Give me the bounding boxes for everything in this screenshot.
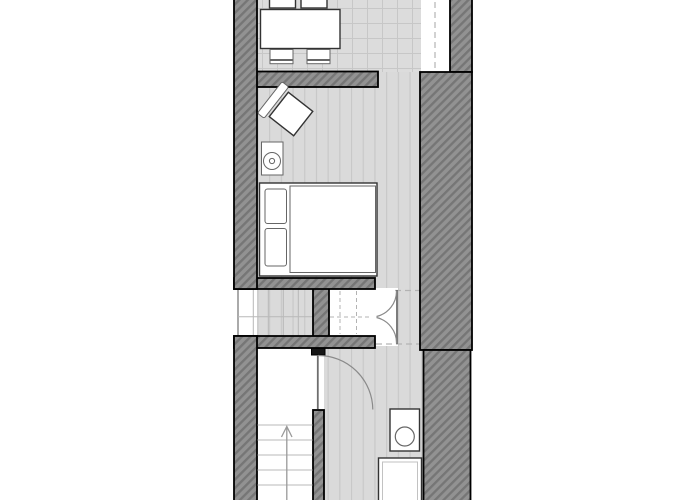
chair-top-right xyxy=(301,0,327,8)
floor-plan-drawing xyxy=(0,0,700,500)
floor-plan-canvas xyxy=(0,0,700,500)
bed-pillow-bottom xyxy=(265,229,287,267)
left-wall-upper xyxy=(234,0,257,289)
dining-table xyxy=(261,10,341,49)
right-wall-opening xyxy=(421,0,449,72)
washbasin-bowl xyxy=(395,427,414,446)
right-wall-main xyxy=(420,72,472,350)
double-bed xyxy=(260,183,378,276)
landing-bathroom-wall xyxy=(313,410,324,500)
stair-closet-divider-wall xyxy=(313,288,329,337)
stove-burner-ring xyxy=(264,153,281,170)
bed-mattress xyxy=(290,186,376,273)
dining-south-wall xyxy=(256,72,378,88)
chair-top-left xyxy=(270,0,296,8)
bed-pillow-top xyxy=(265,189,287,224)
right-wall-top-corner xyxy=(450,0,472,72)
stove xyxy=(262,142,284,175)
washbasin xyxy=(390,409,420,451)
shower-tray xyxy=(379,458,422,500)
right-wall-bottom xyxy=(424,350,471,500)
chair-bottom-right xyxy=(307,50,330,64)
stair-landing-floor xyxy=(257,348,313,500)
left-wall-lower xyxy=(234,336,257,500)
chair-bottom-left xyxy=(270,50,293,64)
